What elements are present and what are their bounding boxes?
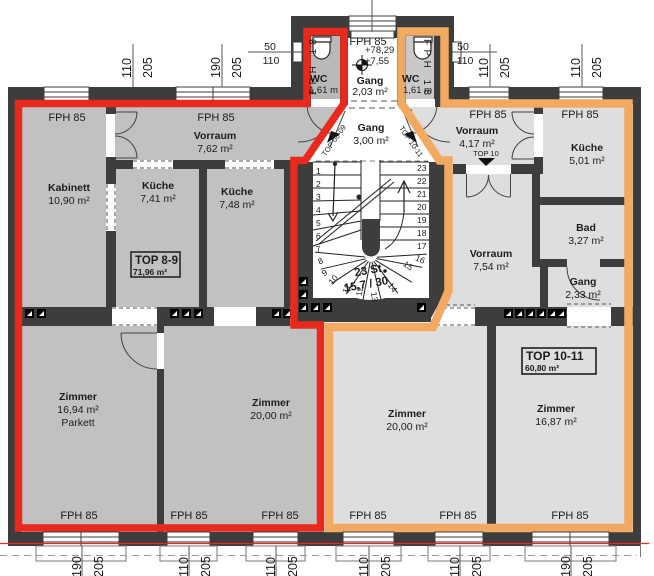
svg-text:23: 23 <box>417 163 427 173</box>
svg-text:110: 110 <box>263 55 280 67</box>
svg-text:Zimmer: Zimmer <box>252 397 290 409</box>
svg-text:Gang: Gang <box>570 276 597 288</box>
svg-text:110: 110 <box>357 557 371 576</box>
svg-text:FPH 85: FPH 85 <box>349 510 386 522</box>
svg-text:Bad: Bad <box>576 222 596 234</box>
svg-text:Küche: Küche <box>571 142 603 154</box>
svg-text:Küche: Küche <box>142 180 174 192</box>
svg-text:Küche: Küche <box>221 186 253 198</box>
svg-text:110: 110 <box>120 58 134 78</box>
svg-text:190: 190 <box>559 556 573 576</box>
svg-text:71,96 m²: 71,96 m² <box>133 267 167 277</box>
svg-text:FPH 85: FPH 85 <box>561 109 598 121</box>
svg-text:50: 50 <box>457 41 469 53</box>
svg-text:20,00 m²: 20,00 m² <box>386 421 428 433</box>
svg-text:2,03 m²: 2,03 m² <box>352 86 388 98</box>
svg-text:18: 18 <box>417 228 427 238</box>
svg-text:7,54 m²: 7,54 m² <box>473 261 509 273</box>
svg-text:+78,29: +78,29 <box>365 45 394 56</box>
svg-text:5,01 m²: 5,01 m² <box>569 155 605 167</box>
svg-text:20,00 m²: 20,00 m² <box>250 410 292 422</box>
svg-text:FPH 85: FPH 85 <box>469 109 506 121</box>
svg-text:6: 6 <box>316 231 321 241</box>
svg-text:205: 205 <box>498 57 512 78</box>
svg-text:Zimmer: Zimmer <box>537 403 575 415</box>
svg-text:205: 205 <box>92 556 106 576</box>
svg-text:205: 205 <box>141 57 155 78</box>
svg-text:110: 110 <box>569 58 583 78</box>
svg-text:110: 110 <box>177 557 191 576</box>
svg-text:60,80 m²: 60,80 m² <box>525 363 559 373</box>
svg-text:Parkett: Parkett <box>61 417 94 429</box>
svg-text:110: 110 <box>477 58 491 78</box>
svg-text:Gang: Gang <box>358 122 385 134</box>
svg-text:19: 19 <box>417 215 427 225</box>
svg-text:110: 110 <box>457 55 474 67</box>
svg-text:Vorraum: Vorraum <box>470 248 512 260</box>
svg-text:7,41 m²: 7,41 m² <box>140 193 176 205</box>
svg-text:205: 205 <box>286 556 300 576</box>
svg-text:205: 205 <box>379 556 393 576</box>
svg-text:FPH 85: FPH 85 <box>60 510 97 522</box>
svg-text:22: 22 <box>417 176 427 186</box>
svg-text:5: 5 <box>316 218 321 228</box>
svg-text:WC: WC <box>402 73 420 85</box>
svg-text:20: 20 <box>417 202 427 212</box>
svg-text:205: 205 <box>230 57 244 78</box>
svg-text:FPH 85: FPH 85 <box>48 112 85 124</box>
svg-text:2: 2 <box>316 179 321 189</box>
svg-text:205: 205 <box>470 556 484 576</box>
svg-text:110: 110 <box>448 557 462 576</box>
svg-text:Vorraum: Vorraum <box>456 125 498 137</box>
svg-text:17: 17 <box>417 241 427 251</box>
svg-text:FPH 85: FPH 85 <box>439 510 476 522</box>
svg-text:2,33 m²: 2,33 m² <box>565 289 601 301</box>
svg-text:4: 4 <box>316 205 321 215</box>
svg-text:10,90 m²: 10,90 m² <box>48 195 90 207</box>
svg-text:Vorraum: Vorraum <box>194 130 236 142</box>
svg-text:190: 190 <box>70 556 84 576</box>
svg-text:16,87 m²: 16,87 m² <box>535 416 577 428</box>
svg-text:21: 21 <box>417 189 427 199</box>
svg-text:205: 205 <box>590 57 604 78</box>
svg-text:205: 205 <box>581 556 595 576</box>
svg-text:50: 50 <box>264 41 276 53</box>
svg-text:1: 1 <box>316 166 321 176</box>
svg-text:16,94 m²: 16,94 m² <box>57 404 99 416</box>
svg-text:Zimmer: Zimmer <box>388 408 426 420</box>
svg-text:110: 110 <box>264 557 278 576</box>
svg-text:TOP 8-9: TOP 8-9 <box>135 255 178 267</box>
svg-text:13: 13 <box>369 291 381 302</box>
svg-text:TOP 10: TOP 10 <box>473 149 499 158</box>
svg-text:Kabinett: Kabinett <box>48 182 91 194</box>
svg-text:Zimmer: Zimmer <box>59 391 97 403</box>
svg-text:190: 190 <box>209 57 223 78</box>
svg-text:3,27 m²: 3,27 m² <box>568 235 604 247</box>
svg-text:FPH 85: FPH 85 <box>197 112 234 124</box>
svg-text:205: 205 <box>199 556 213 576</box>
svg-text:FPH 85: FPH 85 <box>261 510 298 522</box>
svg-text:3: 3 <box>316 192 321 202</box>
svg-text:FPH 85: FPH 85 <box>551 510 588 522</box>
svg-text:3,00 m²: 3,00 m² <box>353 135 389 147</box>
svg-text:TOP 10-11: TOP 10-11 <box>526 349 584 363</box>
svg-text:7,62 m²: 7,62 m² <box>197 143 233 155</box>
svg-text:FPH 85: FPH 85 <box>170 510 207 522</box>
svg-text:7,48 m²: 7,48 m² <box>219 199 255 211</box>
